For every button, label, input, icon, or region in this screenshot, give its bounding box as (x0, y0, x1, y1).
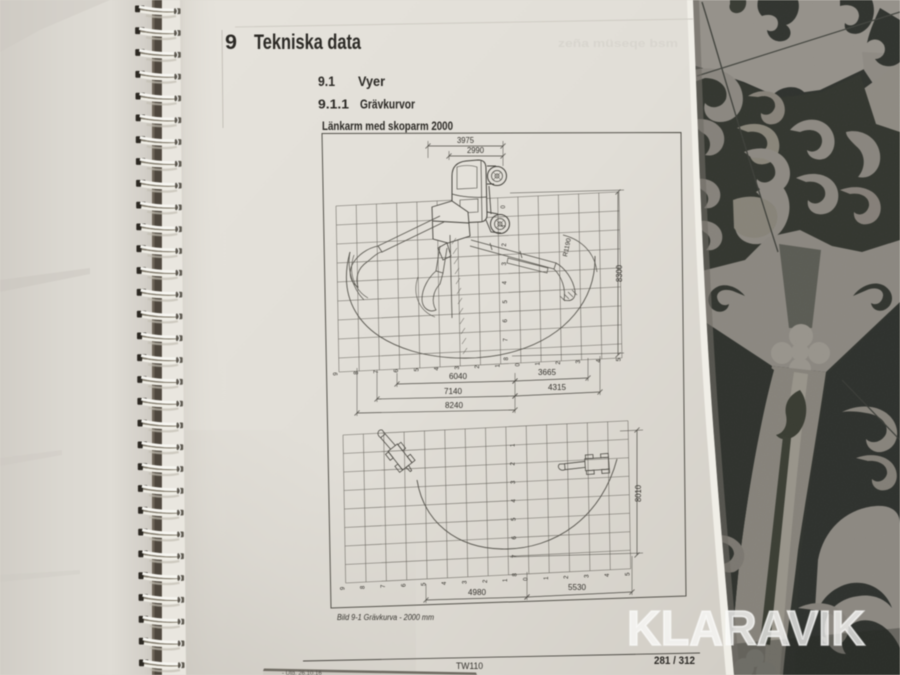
svg-text:5530: 5530 (568, 583, 587, 592)
svg-text:Grävkurvor: Grävkurvor (360, 98, 415, 112)
svg-text:zeña müseqe bsm: zeña müseqe bsm (558, 38, 678, 50)
svg-text:8300: 8300 (615, 264, 624, 282)
svg-text:Tekniska data: Tekniska data (254, 30, 362, 54)
svg-text:- Utg. 26.10.16: - Utg. 26.10.16 (282, 671, 322, 675)
svg-text:9: 9 (225, 30, 237, 54)
svg-text:Vyer: Vyer (358, 73, 385, 89)
svg-text:8010: 8010 (634, 484, 643, 502)
svg-text:7140: 7140 (444, 387, 463, 396)
svg-text:2990: 2990 (467, 146, 485, 155)
svg-text:4980: 4980 (468, 588, 487, 597)
svg-text:KLARAVIK: KLARAVIK (627, 602, 865, 656)
svg-text:4315: 4315 (548, 383, 567, 392)
svg-text:Bild 9-1 Grävkurva - 2000 mm: Bild 9-1 Grävkurva - 2000 mm (337, 612, 434, 622)
svg-text:3665: 3665 (538, 368, 557, 377)
svg-text:Länkarm med skoparm 2000: Länkarm med skoparm 2000 (322, 119, 453, 133)
svg-text:9.1: 9.1 (318, 73, 335, 89)
svg-text:9.1.1: 9.1.1 (318, 98, 349, 112)
svg-text:3975: 3975 (457, 136, 475, 145)
svg-text:281 / 312: 281 / 312 (654, 655, 695, 667)
svg-text:TW110: TW110 (456, 661, 483, 672)
svg-text:8240: 8240 (445, 401, 464, 410)
svg-text:6040: 6040 (449, 372, 468, 381)
